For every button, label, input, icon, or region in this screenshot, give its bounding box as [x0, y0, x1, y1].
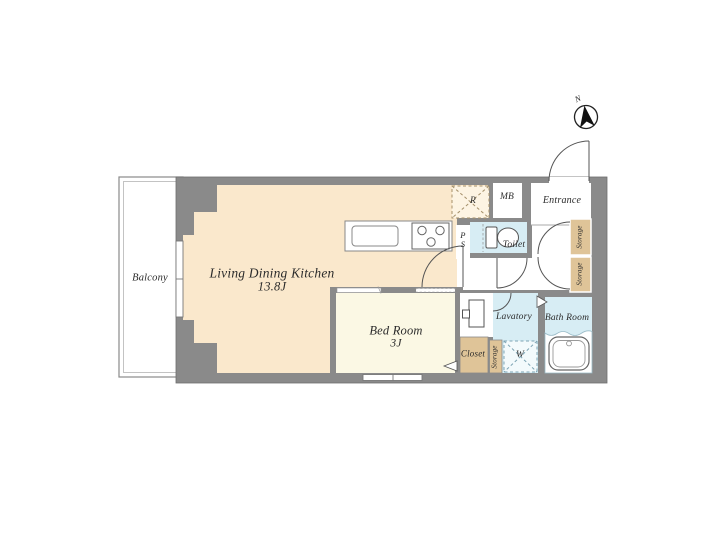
balcony-window	[176, 241, 183, 317]
north-arrow-icon	[573, 104, 599, 130]
storage-upper-label: Storage	[576, 225, 583, 248]
bathtub	[549, 337, 589, 370]
ldk-label: Living Dining Kitchen 13.8J	[210, 266, 335, 293]
pipe-space-letter-s: S	[460, 240, 465, 249]
kitchen-sink	[352, 226, 398, 246]
washer-label: W	[516, 351, 524, 361]
lavatory-label: Lavatory	[496, 313, 532, 323]
toilet-label: Toilet	[503, 241, 526, 251]
bedroom-label: Bed Room 3J	[369, 324, 422, 349]
kitchen-counter	[345, 221, 452, 251]
ldk-size: 13.8J	[210, 281, 335, 294]
meter-box-label: MB	[500, 193, 514, 203]
refrigerator-label: R	[470, 197, 476, 207]
pipe-space-label: P S	[460, 231, 465, 249]
floor-plan: Balcony Living Dining Kitchen 13.8J Bed …	[0, 0, 720, 540]
bedroom-storage-label: Storage	[491, 345, 498, 368]
bedroom-name: Bed Room	[369, 324, 422, 337]
entrance-door-opening	[549, 177, 589, 184]
floor-plan-drawing	[0, 0, 720, 540]
ldk-name: Living Dining Kitchen	[210, 266, 335, 280]
bathroom-label: Bath Room	[545, 314, 589, 324]
bedroom-size: 3J	[369, 338, 422, 350]
storage-lower-label: Storage	[576, 262, 583, 285]
kitchen-stove	[412, 223, 449, 249]
balcony-label: Balcony	[132, 272, 168, 283]
bedroom-window	[363, 375, 422, 381]
closet-label: Closet	[461, 349, 485, 358]
entrance-label: Entrance	[543, 196, 581, 207]
entrance-door	[549, 141, 589, 181]
